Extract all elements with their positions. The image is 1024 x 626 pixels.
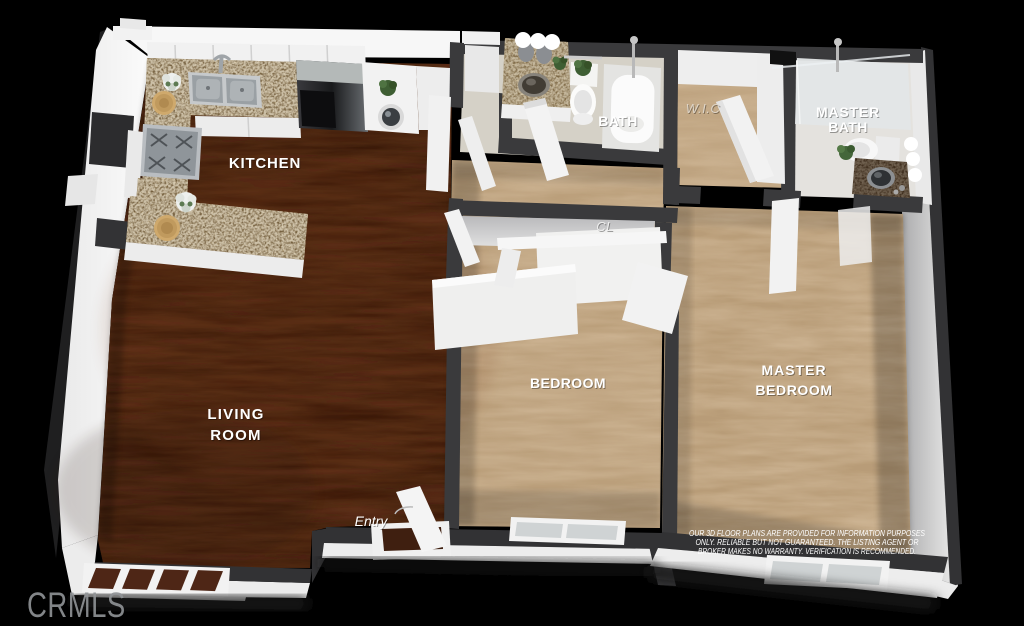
svg-text:MASTER: MASTER xyxy=(761,362,826,378)
svg-text:BATH: BATH xyxy=(598,113,637,129)
svg-text:OUR 3D FLOOR PLANS ARE PROVIDE: OUR 3D FLOOR PLANS ARE PROVIDED FOR INFO… xyxy=(689,529,926,538)
svg-text:BEDROOM: BEDROOM xyxy=(755,382,832,398)
svg-text:ROOM: ROOM xyxy=(210,427,261,444)
svg-text:Entry: Entry xyxy=(355,513,389,529)
svg-text:BATH: BATH xyxy=(828,119,867,135)
svg-text:W.I.C: W.I.C xyxy=(686,101,721,116)
svg-text:BROKER MAKES NO WARRANTY. VERI: BROKER MAKES NO WARRANTY. VERIFICATION I… xyxy=(698,547,916,556)
svg-text:LIVING: LIVING xyxy=(207,406,264,423)
svg-text:KITCHEN: KITCHEN xyxy=(229,155,301,172)
svg-text:CL: CL xyxy=(596,219,614,234)
svg-text:CRMLS: CRMLS xyxy=(27,586,126,621)
svg-text:BEDROOM: BEDROOM xyxy=(530,375,606,391)
svg-text:ONLY. RELIABLE BUT NOT GUARANT: ONLY. RELIABLE BUT NOT GUARANTEED. THE L… xyxy=(696,538,919,547)
svg-text:MASTER: MASTER xyxy=(816,104,880,120)
